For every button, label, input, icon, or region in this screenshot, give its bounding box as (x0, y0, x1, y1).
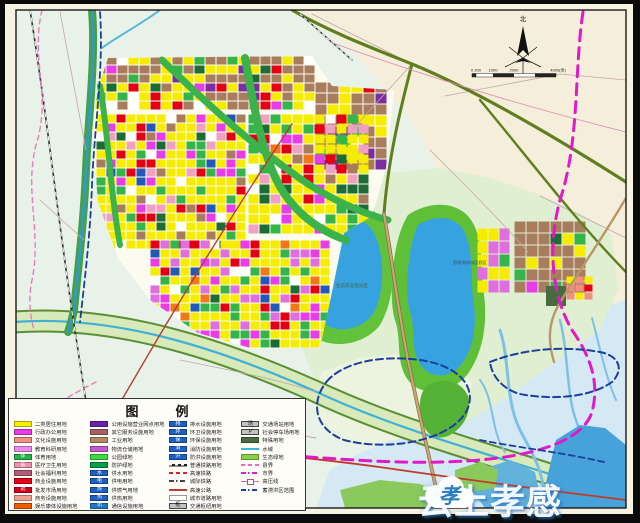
legend-swatch: 燃 (90, 487, 108, 493)
map-label: 2000 (510, 68, 520, 73)
legend-label: 供电用地 (111, 477, 132, 485)
legend-label: 蓄滞洪区范围 (262, 486, 294, 494)
legend-label: 供热用地 (111, 494, 132, 502)
legend-column-2: 公用设施营业网点用地其它服务设施用地工业用地物流仓储用地公园绿地防护绿地水供水用… (90, 420, 168, 510)
legend-label: 交通枢纽用地 (190, 502, 222, 510)
map-label: 野猪湖休闲度假区 (453, 259, 487, 266)
legend-item: 公用设施营业网点用地 (90, 420, 168, 428)
legend-label: 市界 (262, 469, 273, 477)
legend-label: 消防设施用地 (190, 445, 222, 453)
legend-label: 排水设施用地 (190, 420, 222, 428)
legend-swatch: 排 (169, 421, 187, 427)
legend-item: 高速铁路 (169, 469, 242, 477)
legend-swatch (14, 503, 32, 509)
legend-item: 保环保设施用地 (169, 436, 242, 444)
legend-swatch: 体 (14, 454, 32, 460)
legend-item: 批批发市场用地 (14, 486, 90, 494)
legend-swatch: 环 (169, 429, 187, 435)
legend-swatch (169, 462, 187, 468)
legend-swatch (14, 495, 32, 501)
legend-swatch (14, 478, 32, 484)
legend-label: 供燃气用地 (111, 486, 138, 494)
legend-item: 娱乐康体设施用地 (14, 502, 90, 510)
legend-swatch (241, 487, 259, 493)
legend-item: 消消防设施用地 (169, 445, 242, 453)
legend-swatch (90, 421, 108, 427)
legend-swatch: 保 (169, 437, 187, 443)
legend-column-3: 排排水设施用地环环卫设施用地保环保设施用地消消防设施用地洪防洪设施用地普通铁路用… (169, 420, 242, 510)
legend-swatch (241, 437, 259, 443)
legend-item: 公园绿地 (90, 453, 168, 461)
legend-label: 高压线 (262, 477, 278, 485)
legend-swatch (241, 478, 259, 484)
legend-label: 社会福利用地 (35, 469, 67, 477)
legend-item: 讯通信设施用地 (90, 502, 168, 510)
legend-label: 县界 (262, 461, 273, 469)
legend-item: 防护绿地 (90, 461, 168, 469)
legend-label: 公园绿地 (111, 453, 132, 461)
legend-item: 水供水用地 (90, 469, 168, 477)
legend-swatch (169, 495, 187, 501)
legend-label: 防洪设施用地 (190, 453, 222, 461)
legend-label: 交通场站用地 (262, 420, 294, 428)
legend-item: 城际铁路 (169, 477, 242, 485)
legend-item: 热供热用地 (90, 494, 168, 502)
legend-label: 商业设施用地 (35, 477, 67, 485)
legend-item: 生态绿地 (241, 453, 303, 461)
legend-swatch (241, 454, 259, 460)
legend-swatch: 批 (14, 487, 32, 493)
legend-item: 教育科研用地 (14, 445, 90, 453)
legend-label: 通信设施用地 (111, 502, 143, 510)
legend-label: 批发市场用地 (35, 486, 67, 494)
legend-item: 市界 (241, 469, 303, 477)
legend-column-1: 二类居住用地行政办公用地文化设施用地教育科研用地体体育用地医医疗卫生用地社会福利… (14, 420, 90, 510)
legend-label: 文化设施用地 (35, 436, 67, 444)
legend-label: 公用设施营业网点用地 (111, 420, 164, 428)
legend-swatch (241, 446, 259, 452)
legend-swatch (14, 421, 32, 427)
legend-swatch: 场 (241, 421, 259, 427)
legend-swatch: 洪 (169, 454, 187, 460)
legend-item: 高压线 (241, 477, 303, 485)
legend-item: 社会福利用地 (14, 469, 90, 477)
legend-label: 娱乐康体设施用地 (35, 502, 77, 510)
map-label: 4000(米) (550, 67, 566, 73)
legend-label: 高速铁路 (190, 469, 211, 477)
legend-item: 医医疗卫生用地 (14, 461, 90, 469)
legend-label: 工业用地 (111, 436, 132, 444)
legend-item: 蓄滞洪区范围 (241, 486, 303, 494)
legend-item: 县界 (241, 461, 303, 469)
legend-item: 电供电用地 (90, 477, 168, 485)
legend-label: 社会停车场用地 (262, 428, 299, 436)
legend-item: 水域 (241, 445, 303, 453)
legend-item: 枢交通枢纽用地 (169, 502, 242, 510)
legend-item: P社会停车场用地 (241, 428, 303, 436)
legend-label: 医疗卫生用地 (35, 461, 67, 469)
legend-label: 环保设施用地 (190, 436, 222, 444)
legend-label: 教育科研用地 (35, 445, 67, 453)
legend-item: 物流仓储用地 (90, 445, 168, 453)
map-label: 0 200 (471, 68, 482, 73)
legend-swatch (90, 462, 108, 468)
legend-item: 文化设施用地 (14, 436, 90, 444)
legend-swatch (14, 446, 32, 452)
legend-item: 燃供燃气用地 (90, 486, 168, 494)
legend-item: 工业用地 (90, 436, 168, 444)
legend-label: 水域 (262, 445, 273, 453)
legend-swatch (90, 429, 108, 435)
legend-swatch (169, 487, 187, 493)
legend-swatch: 讯 (90, 503, 108, 509)
legend-swatch (14, 470, 32, 476)
hv-box-icon (247, 479, 254, 485)
legend-swatch (169, 478, 187, 484)
legend-label: 城际铁路 (190, 477, 211, 485)
legend-label: 供水用地 (111, 469, 132, 477)
legend-label: 防护绿地 (111, 461, 132, 469)
legend-item: 二类居住用地 (14, 420, 90, 428)
legend-item: 普通铁路用地 (169, 461, 242, 469)
legend-label: 环卫设施用地 (190, 428, 222, 436)
legend-item: 其它服务设施用地 (90, 428, 168, 436)
legend-swatch: 消 (169, 446, 187, 452)
legend-item: 商业设施用地 (14, 477, 90, 485)
legend-item: 体体育用地 (14, 453, 90, 461)
legend-label: 其它服务设施用地 (111, 428, 153, 436)
legend-label: 行政办公用地 (35, 428, 67, 436)
legend-label: 二类居住用地 (35, 420, 67, 428)
legend-swatch (241, 470, 259, 476)
legend-swatch: 医 (14, 462, 32, 468)
legend-swatch: 热 (90, 495, 108, 501)
legend-swatch (169, 470, 187, 476)
legend-label: 高速公路 (190, 486, 211, 494)
legend-label: 体育用地 (35, 453, 56, 461)
legend-swatch: 电 (90, 478, 108, 484)
legend-panel: 图 例 二类居住用地行政办公用地文化设施用地教育科研用地体体育用地医医疗卫生用地… (8, 398, 306, 511)
map-label: 1000 (489, 68, 499, 73)
legend-swatch: 水 (90, 470, 108, 476)
legend-swatch (241, 462, 259, 468)
legend-item: 商务设施用地 (14, 494, 90, 502)
legend-swatch (14, 429, 32, 435)
legend-item: 城市道路用地 (169, 494, 242, 502)
legend-item: 排排水设施用地 (169, 420, 242, 428)
legend-label: 特殊用地 (262, 436, 283, 444)
legend-column-4: 场交通场站用地P社会停车场用地特殊用地水域生态绿地县界市界高压线蓄滞洪区范围 (241, 420, 303, 510)
legend-item: 场交通场站用地 (241, 420, 303, 428)
legend-label: 普通铁路用地 (190, 461, 222, 469)
legend-swatch (90, 446, 108, 452)
planning-map-page: 生态农业观光区野猪湖休闲度假区北0 200100020004000(米) 图 例… (0, 0, 640, 523)
legend-label: 物流仓储用地 (111, 445, 143, 453)
legend-swatch (90, 454, 108, 460)
legend-columns: 二类居住用地行政办公用地文化设施用地教育科研用地体体育用地医医疗卫生用地社会福利… (14, 420, 303, 510)
legend-item: 环环卫设施用地 (169, 428, 242, 436)
legend-swatch: P (241, 429, 259, 435)
legend-item: 高速公路 (169, 486, 242, 494)
legend-item: 特殊用地 (241, 436, 303, 444)
legend-swatch: 枢 (169, 503, 187, 509)
legend-swatch (14, 437, 32, 443)
legend-item: 洪防洪设施用地 (169, 453, 242, 461)
legend-title: 图 例 (9, 401, 305, 420)
map-label: 生态农业观光区 (336, 282, 369, 289)
legend-item: 行政办公用地 (14, 428, 90, 436)
legend-label: 商务设施用地 (35, 494, 67, 502)
map-label: 北 (520, 15, 527, 23)
legend-label: 生态绿地 (262, 453, 283, 461)
legend-label: 城市道路用地 (190, 494, 222, 502)
legend-swatch (90, 437, 108, 443)
